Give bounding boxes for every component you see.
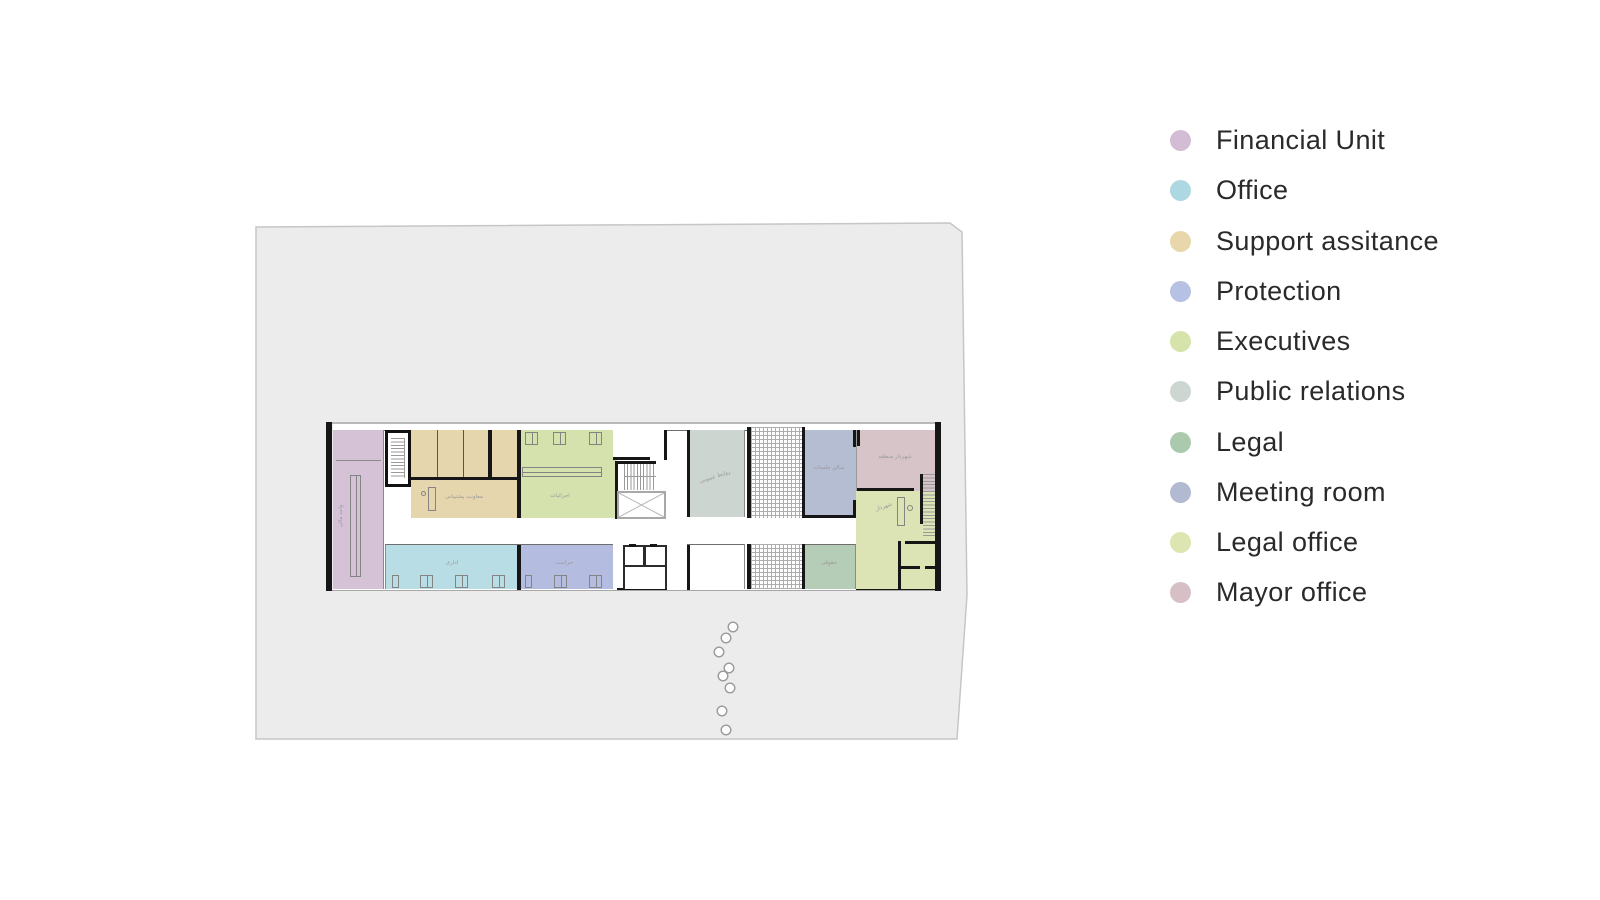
tree-icon (721, 725, 731, 735)
legend-item-support-assitance: Support assitance (1170, 216, 1439, 266)
shaft-door-jamb (629, 544, 636, 547)
room-label-legal: حقوقی (821, 560, 837, 566)
long-table (522, 467, 602, 477)
tree-icon (721, 633, 731, 643)
table (554, 575, 567, 588)
tree-icon (717, 706, 727, 716)
desk (897, 497, 905, 526)
legend-label: Mayor office (1216, 577, 1367, 608)
room-label-protection: حراست (555, 560, 573, 566)
table (455, 575, 468, 588)
atrium-grid-bottom (747, 544, 805, 589)
legend-item-meeting-room: Meeting room (1170, 467, 1386, 517)
legend-swatch-public-relations (1170, 381, 1191, 402)
legend-item-executives: Executives (1170, 316, 1351, 366)
wall-mayor-left-stub (857, 430, 860, 446)
wall-protection-left (517, 545, 521, 590)
partition-wall (463, 430, 464, 479)
legend-label: Public relations (1216, 376, 1406, 407)
core-stairs-landing (624, 476, 656, 477)
partition-wall-thick (488, 430, 492, 479)
legend-label: Executives (1216, 326, 1351, 357)
room-label-office: اداری (446, 560, 458, 566)
floor-plan-page: واحد مالی معاونت پشتیبانی اجرائیات (0, 0, 1600, 900)
stair-rail (404, 438, 405, 478)
legend-item-protection: Protection (1170, 266, 1342, 316)
legend-label: Meeting room (1216, 477, 1386, 508)
wall-inner-horizontal-b (901, 566, 920, 569)
room-label-executives: اجرائیات (550, 493, 570, 499)
legend-item-office: Office (1170, 165, 1288, 215)
tree-icon (728, 622, 738, 632)
tree-icon (714, 647, 724, 657)
atrium-bottom-wall-left (747, 544, 751, 589)
table (589, 432, 602, 445)
legend-item-legal-office: Legal office (1170, 517, 1358, 567)
legend-swatch-office (1170, 180, 1191, 201)
room-label-mayor-office: شهردار منطقه (878, 454, 911, 460)
table (553, 432, 566, 445)
legend-label: Legal office (1216, 527, 1358, 558)
partition-wall-horizontal (411, 477, 517, 480)
core-stairs (624, 464, 656, 490)
stairwell-left (385, 430, 411, 487)
legend-swatch-legal (1170, 432, 1191, 453)
table (420, 575, 433, 588)
core-room (613, 430, 667, 460)
bottom-white-room (687, 544, 745, 589)
room-executives (517, 430, 617, 518)
wall-left (326, 422, 333, 591)
chair (421, 491, 426, 496)
legend-swatch-mayor-office (1170, 582, 1191, 603)
legend-label: Legal (1216, 427, 1284, 458)
room-protection (517, 544, 613, 589)
wall-executives-left (517, 430, 521, 518)
wall-inner-horizontal-c (925, 566, 935, 569)
atrium-grid-top (747, 427, 805, 518)
chair (907, 505, 913, 511)
legend-item-legal: Legal (1170, 417, 1284, 467)
table (525, 432, 538, 445)
table (392, 575, 399, 588)
shaft-door-jamb (650, 544, 657, 547)
legend-swatch-executives (1170, 331, 1191, 352)
table (492, 575, 505, 588)
room-label-financial: واحد مالی (338, 504, 344, 527)
building-top-edge (326, 422, 941, 424)
wall-pr-left (687, 430, 690, 517)
wall-white-room-left (687, 545, 690, 590)
room-label-support: معاونت پشتیبانی (445, 494, 483, 500)
stair-treads (391, 438, 405, 478)
shelf (350, 475, 361, 577)
table (589, 575, 602, 588)
partition-wall (437, 430, 438, 479)
wall-inner-vertical (898, 541, 901, 589)
legend-item-financial-unit: Financial Unit (1170, 115, 1385, 165)
core-room-wall-bottom (613, 457, 650, 460)
legend-label: Office (1216, 175, 1288, 206)
right-stairs (923, 474, 935, 537)
desk (428, 487, 436, 511)
legend-swatch-financial-unit (1170, 130, 1191, 151)
legend-item-public-relations: Public relations (1170, 366, 1406, 416)
tree-icon (725, 683, 735, 693)
tree-icon (718, 671, 728, 681)
legend-swatch-legal-office (1170, 532, 1191, 553)
room-label-meeting: سالن جلسات (814, 465, 845, 471)
table (525, 575, 532, 588)
elevator-shaft (617, 491, 666, 519)
legend-swatch-meeting-room (1170, 482, 1191, 503)
core-room-wall-right (664, 430, 668, 460)
room-support-assistance (411, 430, 517, 518)
legend-label: Support assitance (1216, 226, 1439, 257)
room-office (385, 544, 517, 589)
wall-inner-horizontal-a (905, 541, 935, 544)
room-legal (805, 544, 856, 589)
legend-swatch-protection (1170, 281, 1191, 302)
wall-meeting-bottom (805, 515, 856, 518)
atrium-top-wall-left (747, 427, 751, 518)
elevator-shafts (623, 545, 667, 567)
counter-line (336, 460, 381, 461)
legend-swatch-support-assitance (1170, 231, 1191, 252)
legend-label: Protection (1216, 276, 1342, 307)
wall-right (935, 422, 941, 591)
core-lower-room (623, 567, 667, 589)
legend-item-mayor-office: Mayor office (1170, 567, 1367, 617)
room-meeting (805, 430, 856, 518)
legend-label: Financial Unit (1216, 125, 1385, 156)
